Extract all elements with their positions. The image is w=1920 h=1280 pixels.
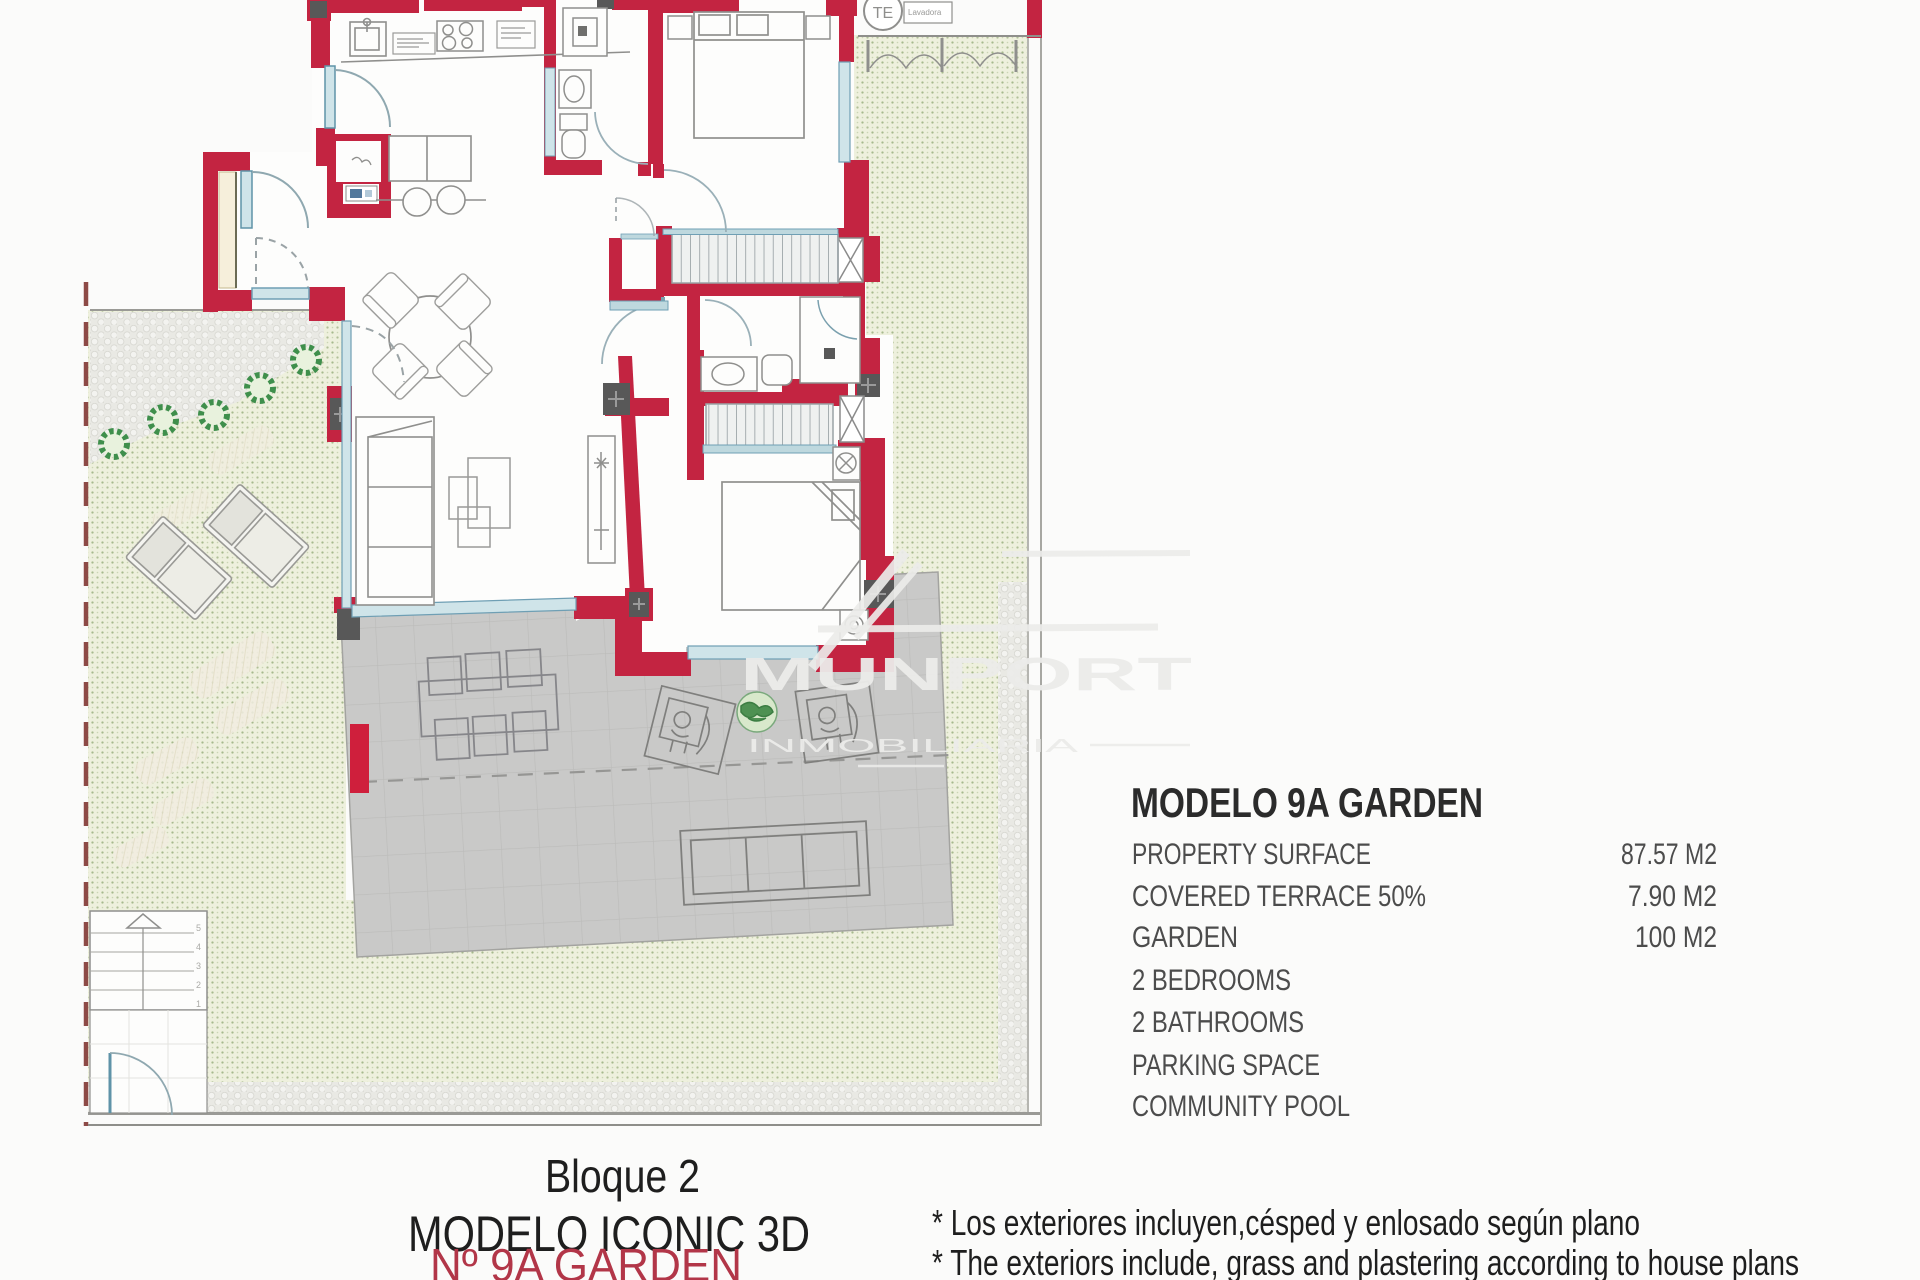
svg-text:MODELO 9A GARDEN: MODELO 9A GARDEN <box>1131 779 1483 826</box>
svg-text:4: 4 <box>196 942 201 952</box>
svg-text:7.90 M2: 7.90 M2 <box>1628 880 1717 913</box>
svg-text:* Los exteriores incluyen,césp: * Los exteriores incluyen,césped y enlos… <box>932 1202 1640 1243</box>
svg-text:87.57 M2: 87.57 M2 <box>1621 838 1717 871</box>
svg-text:PROPERTY SURFACE: PROPERTY SURFACE <box>1132 838 1371 871</box>
svg-text:3: 3 <box>196 961 201 971</box>
svg-text:INMOBILIARIA: INMOBILIARIA <box>747 736 1078 756</box>
svg-text:* The exteriors include, grass: * The exteriors include, grass and plast… <box>932 1242 1799 1280</box>
svg-text:Nº 9A GARDEN: Nº 9A GARDEN <box>430 1239 742 1280</box>
svg-text:Lavadora: Lavadora <box>908 8 942 17</box>
svg-text:COMMUNITY POOL: COMMUNITY POOL <box>1132 1090 1350 1123</box>
svg-text:2: 2 <box>196 980 201 990</box>
svg-text:2 BEDROOMS: 2 BEDROOMS <box>1132 964 1291 997</box>
svg-text:PARKING SPACE: PARKING SPACE <box>1132 1049 1320 1082</box>
svg-text:5: 5 <box>196 923 201 933</box>
svg-text:TE: TE <box>873 5 893 22</box>
svg-text:1: 1 <box>196 999 201 1009</box>
svg-text:MUNPORT: MUNPORT <box>740 648 1192 700</box>
svg-text:COVERED TERRACE 50%: COVERED TERRACE 50% <box>1132 880 1426 913</box>
svg-text:2 BATHROOMS: 2 BATHROOMS <box>1132 1006 1304 1039</box>
svg-text:Bloque 2: Bloque 2 <box>545 1150 700 1202</box>
svg-text:GARDEN: GARDEN <box>1132 921 1238 954</box>
svg-text:100 M2: 100 M2 <box>1635 921 1717 954</box>
